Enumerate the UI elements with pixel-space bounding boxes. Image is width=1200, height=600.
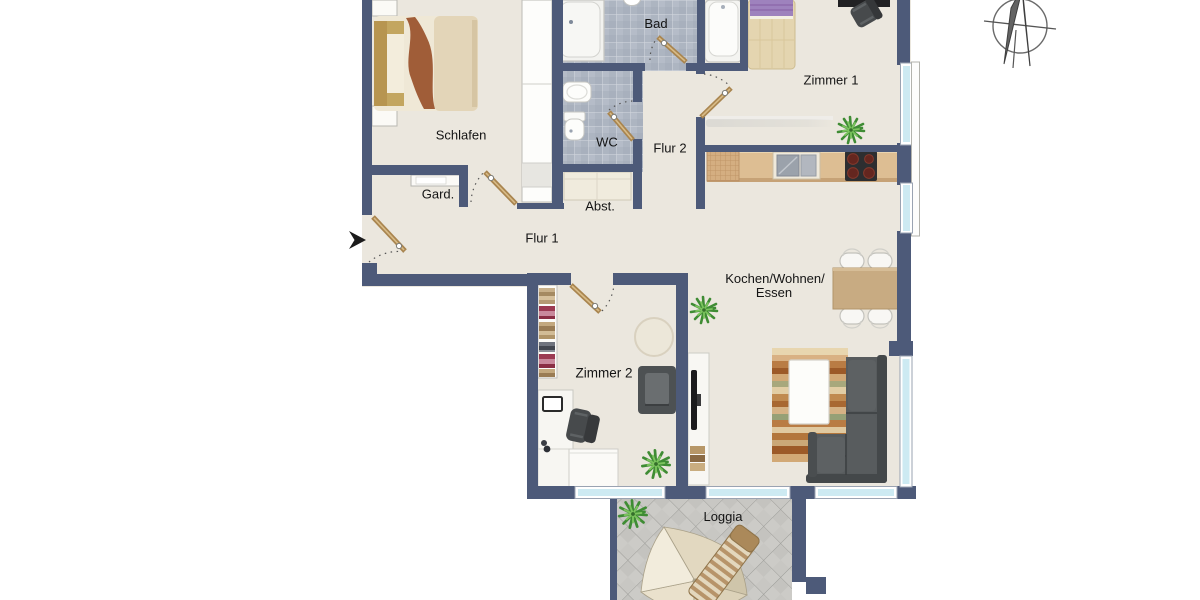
svg-text:Flur 1: Flur 1 (525, 231, 558, 246)
svg-text:Bad: Bad (644, 16, 667, 31)
svg-text:Kochen/Wohnen/: Kochen/Wohnen/ (725, 271, 825, 286)
svg-text:WC: WC (596, 135, 618, 150)
svg-text:Zimmer 2: Zimmer 2 (576, 366, 633, 381)
svg-text:Abst.: Abst. (585, 199, 615, 214)
svg-text:Schlafen: Schlafen (436, 128, 487, 143)
svg-text:Zimmer 1: Zimmer 1 (804, 73, 859, 88)
svg-text:Gard.: Gard. (422, 187, 455, 202)
svg-text:Loggia: Loggia (703, 509, 743, 524)
svg-text:Essen: Essen (756, 285, 792, 300)
svg-text:Flur 2: Flur 2 (653, 141, 686, 156)
